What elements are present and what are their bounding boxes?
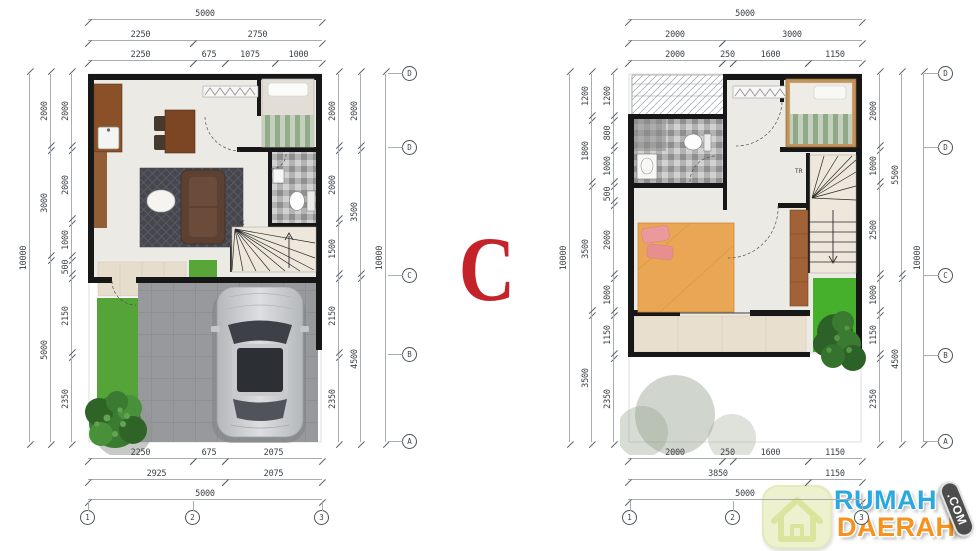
dimension-label: 3000 [40,193,50,213]
stair-direction-label: NK [237,220,245,227]
bathroom [272,152,316,223]
dimension-label: 2350 [61,389,71,409]
grid-marker: D [402,66,417,81]
dimension-segment: 2075 [225,467,322,480]
grid-marker: A [402,434,417,449]
dimension-segment: 5000 [628,487,862,500]
dimension-segment: 3000 [722,28,862,41]
dimension-label: 2075 [264,448,284,458]
dimension-label: 2750 [248,30,268,40]
dimension-segment: 675 [193,446,225,459]
grid-marker: D [402,140,417,155]
dimension-segment: 2250 [88,48,193,61]
dimension-segment: 1000 [867,276,880,313]
grid-marker: D [938,66,953,81]
dimension-label: 1075 [240,50,260,60]
dimension-label: 2350 [328,389,338,409]
dimension-label: 10000 [913,246,923,271]
dimension-segment: 5000 [88,487,322,500]
dimension-label: 1150 [825,448,845,458]
dimension-label: 2150 [61,306,71,326]
dimension-segment: 250 [722,48,733,61]
dimension-label: 500 [61,260,71,275]
sofa [181,170,225,244]
dimension-label: 2250 [131,30,151,40]
dimension-segment: 1000 [601,276,614,313]
dimension-segment: 1200 [579,74,592,118]
dimension-label: 3000 [782,30,802,40]
dimension-segment: 2750 [193,28,322,41]
dimension-segment: 1000 [59,221,72,258]
dimension-segment: 1150 [601,313,614,356]
dimension-label: 2500 [869,220,879,240]
dimension-label: 1600 [761,448,781,458]
dimension-segment: 4500 [889,276,902,442]
dimension-label: 2000 [665,50,685,60]
void-hatch [632,75,725,117]
garden-patch [189,260,217,278]
dimension-segment: 1150 [808,446,862,459]
grid-marker: 1 [80,510,95,525]
dimension-label: 1150 [603,325,613,345]
window [203,86,258,97]
dimension-label: 1150 [825,50,845,60]
grid-marker: B [402,347,417,362]
dimension-segment: 10000 [557,74,570,442]
dimension-label: 1200 [603,86,613,106]
dimension-segment: 1600 [733,48,808,61]
dimension-segment: 2000 [326,148,339,221]
dimension-segment: 2500 [867,184,880,276]
dimension-segment: 1000 [867,148,880,184]
dimension-label: 5500 [891,165,901,185]
dimension-segment: 675 [193,48,225,61]
window [733,86,789,98]
grid-marker: 3 [854,510,869,525]
grid-marker: A [938,434,953,449]
dimension-segment: 1075 [225,48,275,61]
dimension-segment: 2250 [88,28,193,41]
grid-marker: 1 [622,510,637,525]
dimension-segment: 1000 [275,48,322,61]
dimension-segment: 2000 [601,203,614,276]
dimension-segment: 2350 [601,356,614,442]
dimension-label: 5000 [40,340,50,360]
dimension-label: 3500 [350,202,360,222]
dimension-label: 1000 [61,230,71,250]
dimension-label: 675 [202,50,217,60]
dimension-segment: 2000 [867,74,880,148]
dimension-label: 1000 [869,285,879,305]
wardrobe [790,210,808,306]
master-bed [638,223,734,312]
dimension-label: 10000 [19,246,29,271]
dimension-label: 2000 [350,101,360,121]
dimension-label: 10000 [375,246,385,271]
dimension-label: 2000 [61,175,71,195]
dimension-label: 1200 [581,86,591,106]
grid-marker: C [938,268,953,283]
dimension-segment: 2350 [867,356,880,442]
dimension-segment: 5500 [889,74,902,276]
dimension-label: 2350 [603,389,613,409]
dimension-label: 2000 [869,101,879,121]
dimension-label: 2350 [869,389,879,409]
floor-plan-left: NK [85,70,325,455]
dimension-segment: 4500 [348,276,361,442]
dimension-label: 5000 [735,489,755,499]
dimension-label: 1000 [289,50,309,60]
dimension-segment: 5000 [88,7,322,20]
dimension-label: 500 [603,186,613,201]
dimension-segment: 2350 [326,355,339,442]
dimension-label: 1000 [603,156,613,176]
dimension-label: 3500 [581,368,591,388]
dimension-segment: 2000 [59,148,72,221]
dimension-label: 4500 [891,349,901,369]
dimension-label: 2000 [665,448,685,458]
dimension-label: 1000 [869,156,879,176]
dimension-segment: 1500 [326,221,339,276]
dimension-segment: 10000 [911,74,924,442]
dimension-segment: 10000 [373,74,386,442]
dimension-segment: 3500 [579,184,592,313]
dimension-segment: 2075 [225,446,322,459]
dimension-segment: 2000 [59,74,72,148]
dimension-segment: 2250 [88,446,193,459]
balcony [634,316,806,352]
dimension-label: 1000 [603,285,613,305]
dimension-label: 2000 [61,101,71,121]
dimension-label: 2000 [328,101,338,121]
dimension-segment: 2000 [38,74,51,148]
dimension-label: 2000 [328,175,338,195]
dimension-segment: 2350 [59,355,72,442]
dimension-segment: 2000 [348,74,361,148]
bed-single [262,79,314,147]
dimension-label: 2000 [603,230,613,250]
grid-marker: 2 [185,510,200,525]
dimension-label: 10000 [559,246,569,271]
dimension-label: 5000 [195,489,215,499]
dimension-segment: 2150 [326,276,339,355]
floor-plan-sheet: NK [0,0,980,551]
type-label: C [457,228,517,311]
dimension-segment: 5000 [628,7,862,20]
dimension-label: 1150 [825,469,845,479]
dimension-segment: 2000 [628,446,722,459]
dimension-label: 3850 [708,469,728,479]
grid-marker: 3 [314,510,329,525]
dimension-label: 5000 [195,9,215,19]
dimension-label: 2925 [147,469,167,479]
stair-direction-label: TR [795,168,803,175]
dimension-segment: 3850 [628,467,808,480]
dimension-label: 1150 [869,325,879,345]
dimension-segment: 2000 [628,28,722,41]
dimension-segment: 3000 [38,148,51,258]
grid-marker: C [402,268,417,283]
dimension-label: 2000 [665,30,685,40]
dimension-label: 5000 [735,9,755,19]
coffee-table [147,190,175,212]
dimension-label: 2150 [328,306,338,326]
dimension-segment: 500 [601,184,614,203]
grid-marker: D [938,140,953,155]
dimension-segment: 250 [722,446,733,459]
dimension-segment: 2000 [628,48,722,61]
grid-marker: B [938,348,953,363]
grid-marker: 2 [725,510,740,525]
dimension-segment: 5000 [38,258,51,442]
dimension-segment: 1600 [733,446,808,459]
dimension-label: 2000 [40,101,50,121]
staircase: NK [232,220,316,272]
dimension-label: 1800 [581,141,591,161]
dimension-segment: 1150 [808,48,862,61]
dimension-segment: 3500 [348,148,361,276]
bed-single [786,79,856,147]
dimension-segment: 1200 [601,74,614,118]
dimension-label: 2250 [131,448,151,458]
dimension-segment: 3500 [579,313,592,442]
dimension-segment: 2925 [88,467,225,480]
dimension-segment: 1800 [579,118,592,184]
dimension-segment: 10000 [17,74,30,442]
dimension-label: 3500 [581,239,591,259]
dimension-segment: 1150 [867,313,880,356]
bathroom [634,119,723,183]
car [211,287,309,443]
outdoor-trees-faint [620,375,756,455]
dimension-label: 675 [202,448,217,458]
dimension-segment: 2000 [326,74,339,148]
dimension-label: 1500 [328,239,338,259]
floor-plan-right: TR [620,70,870,455]
dimension-label: 1600 [761,50,781,60]
dimension-segment: 1000 [601,148,614,184]
dimension-segment: 800 [601,118,614,148]
dimension-label: 4500 [350,349,360,369]
dimension-label: 800 [603,126,613,141]
dimension-segment: 2150 [59,276,72,355]
dimension-segment: 1150 [808,467,862,480]
dimension-label: 2250 [131,50,151,60]
dimension-label: 2075 [264,469,284,479]
